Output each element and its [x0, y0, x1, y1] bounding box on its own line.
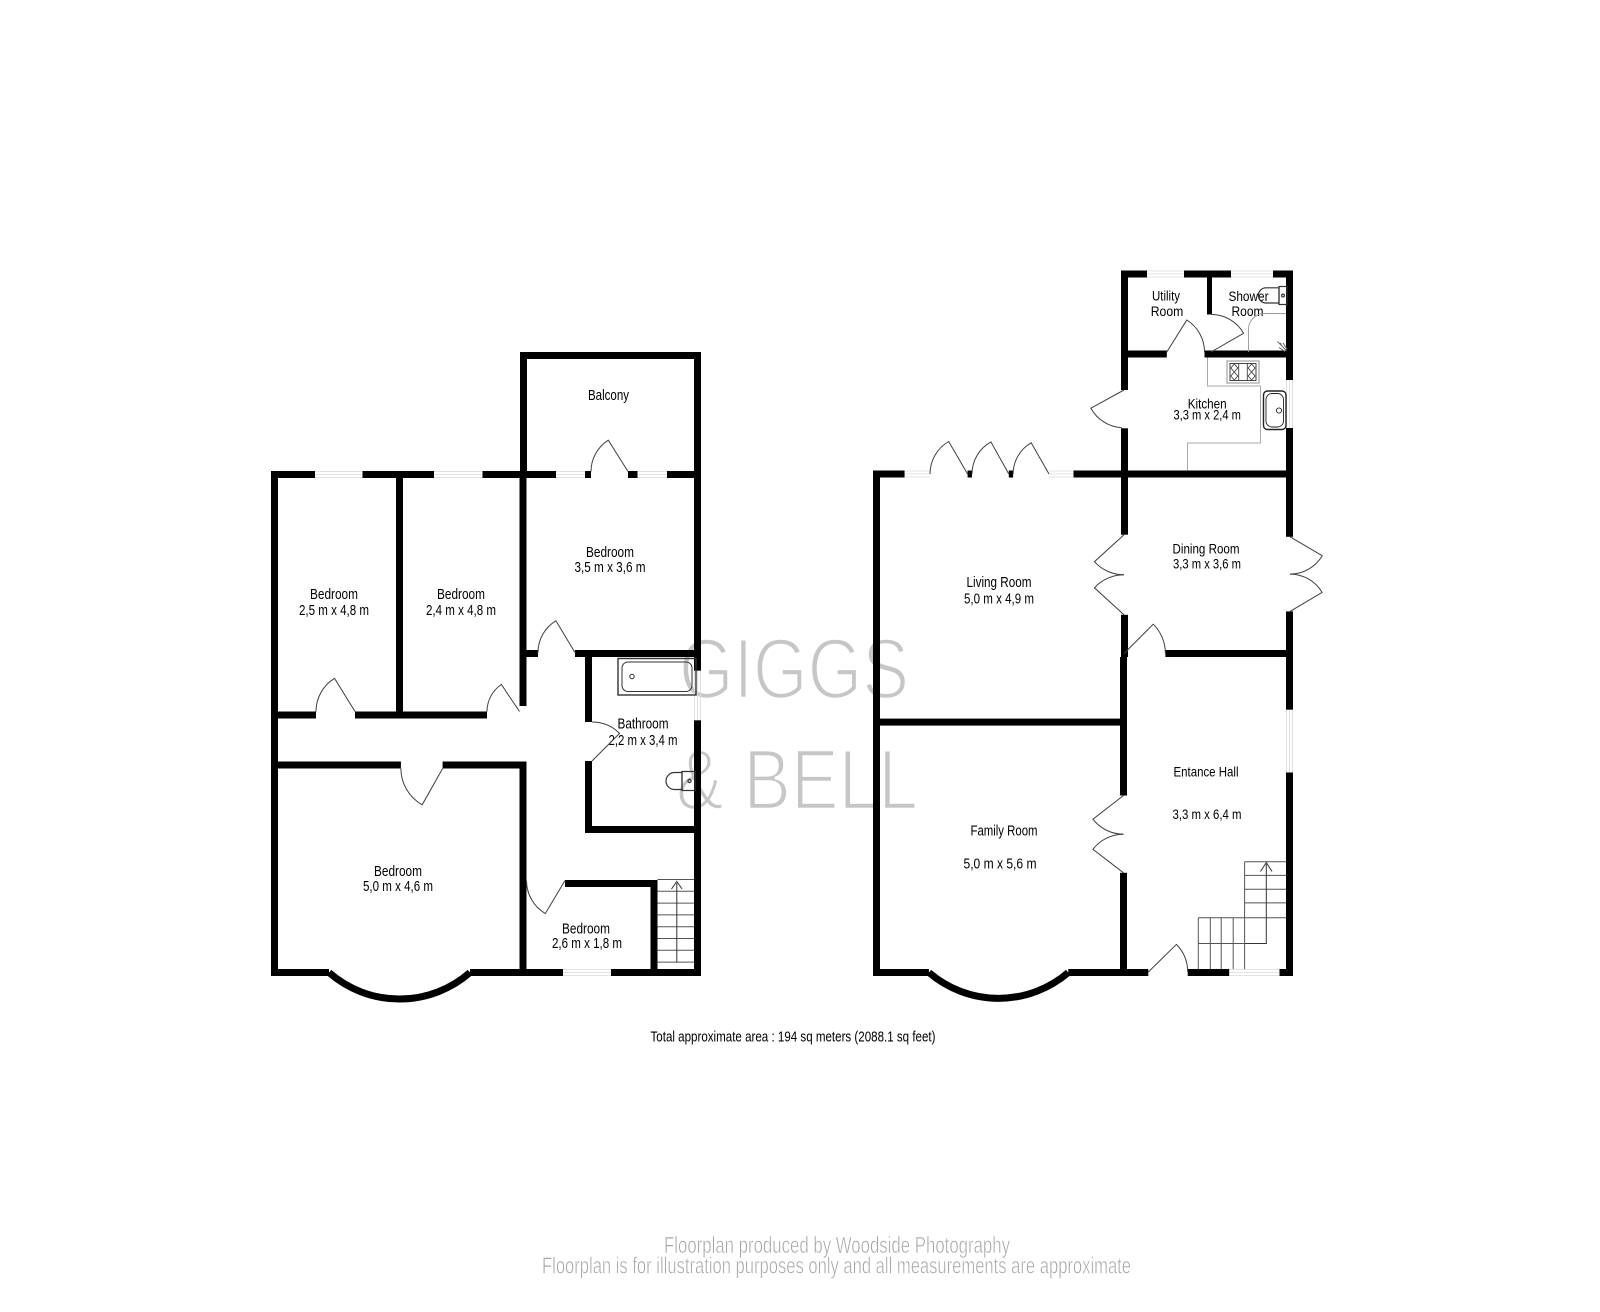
svg-text:& BELL: & BELL — [676, 733, 918, 828]
svg-text:5,0 m x 4,6 m: 5,0 m x 4,6 m — [363, 878, 433, 895]
svg-text:Room: Room — [1232, 304, 1264, 319]
svg-text:Dining Room: Dining Room — [1173, 542, 1240, 557]
svg-text:3,5 m x 3,6 m: 3,5 m x 3,6 m — [575, 559, 646, 576]
svg-text:Bathroom: Bathroom — [618, 716, 669, 733]
svg-text:Floorplan is for illustration: Floorplan is for illustration purposes o… — [542, 1253, 1131, 1279]
svg-text:Utility: Utility — [1152, 289, 1180, 304]
svg-text:Family Room: Family Room — [971, 824, 1038, 840]
svg-text:3,3 m x 2,4 m: 3,3 m x 2,4 m — [1173, 408, 1241, 423]
svg-text:3,3 m x 3,6 m: 3,3 m x 3,6 m — [1173, 557, 1241, 572]
svg-text:Bedroom: Bedroom — [310, 586, 358, 603]
svg-text:3,3 m x 6,4 m: 3,3 m x 6,4 m — [1173, 806, 1242, 822]
svg-text:5,0 m x 4,9 m: 5,0 m x 4,9 m — [964, 592, 1034, 608]
svg-text:Living Room: Living Room — [967, 575, 1032, 591]
svg-text:Total approximate area : 194 s: Total approximate area : 194 sq meters (… — [651, 1030, 936, 1046]
svg-text:2,5 m x 4,8 m: 2,5 m x 4,8 m — [299, 602, 369, 619]
svg-text:5,0 m x 5,6 m: 5,0 m x 5,6 m — [964, 857, 1037, 873]
svg-text:Bedroom: Bedroom — [437, 586, 485, 603]
svg-text:Entance Hall: Entance Hall — [1174, 764, 1239, 780]
svg-text:Balcony: Balcony — [588, 388, 630, 404]
svg-text:Room: Room — [1151, 304, 1184, 319]
svg-text:2,6 m x 1,8 m: 2,6 m x 1,8 m — [552, 935, 622, 952]
svg-text:2,4 m x 4,8 m: 2,4 m x 4,8 m — [426, 602, 496, 619]
